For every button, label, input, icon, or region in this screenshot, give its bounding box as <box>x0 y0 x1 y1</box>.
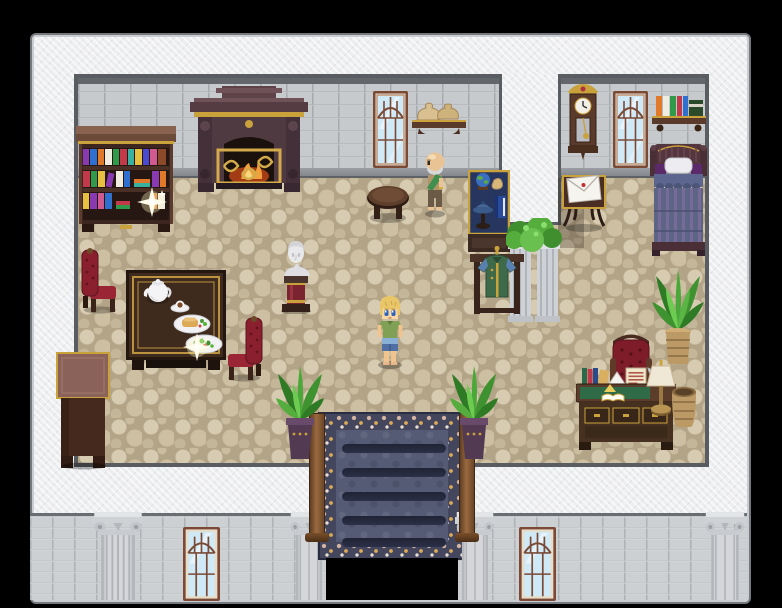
display-counter <box>468 170 510 252</box>
grandfather-clock <box>564 84 602 160</box>
game-viewport[interactable] <box>0 0 782 608</box>
bed <box>650 144 707 256</box>
window-lower-left <box>183 527 220 601</box>
stair-step <box>342 516 446 525</box>
stair-rail-cap <box>305 533 329 542</box>
marble-bust <box>276 236 316 314</box>
player-character[interactable] <box>372 294 408 370</box>
round-table <box>366 182 410 226</box>
stair-rail-cap <box>455 533 479 542</box>
stair-carpet-field <box>336 430 448 542</box>
potted-plant-tall <box>652 268 704 374</box>
sparkle-plate[interactable] <box>182 332 212 362</box>
column <box>704 512 746 600</box>
potted-plant-left <box>276 366 324 462</box>
staircase-down[interactable] <box>318 412 466 560</box>
book-wall-shelf <box>652 90 706 132</box>
window-right-room <box>613 91 648 168</box>
npc-old-man[interactable] <box>422 150 449 218</box>
stair-step <box>342 444 446 453</box>
armchair-red-left <box>80 248 120 314</box>
coin-sack-shelf <box>412 98 466 134</box>
wicker-basket <box>670 384 698 430</box>
potted-plant-right <box>450 366 498 462</box>
armchair-red-right <box>224 316 264 382</box>
side-cabinet <box>56 352 114 470</box>
stair-step <box>342 538 446 547</box>
sparkle-bookshelf[interactable] <box>136 186 168 218</box>
column <box>92 512 144 600</box>
window-left-room <box>373 91 408 168</box>
window-lower-right <box>519 527 556 601</box>
letter-table[interactable] <box>560 168 608 234</box>
coat-stand <box>468 246 526 320</box>
bread-plate <box>174 315 210 333</box>
stairwell-void <box>326 558 458 600</box>
fireplace <box>186 86 312 194</box>
stair-step <box>342 492 446 501</box>
stair-step <box>342 468 446 477</box>
